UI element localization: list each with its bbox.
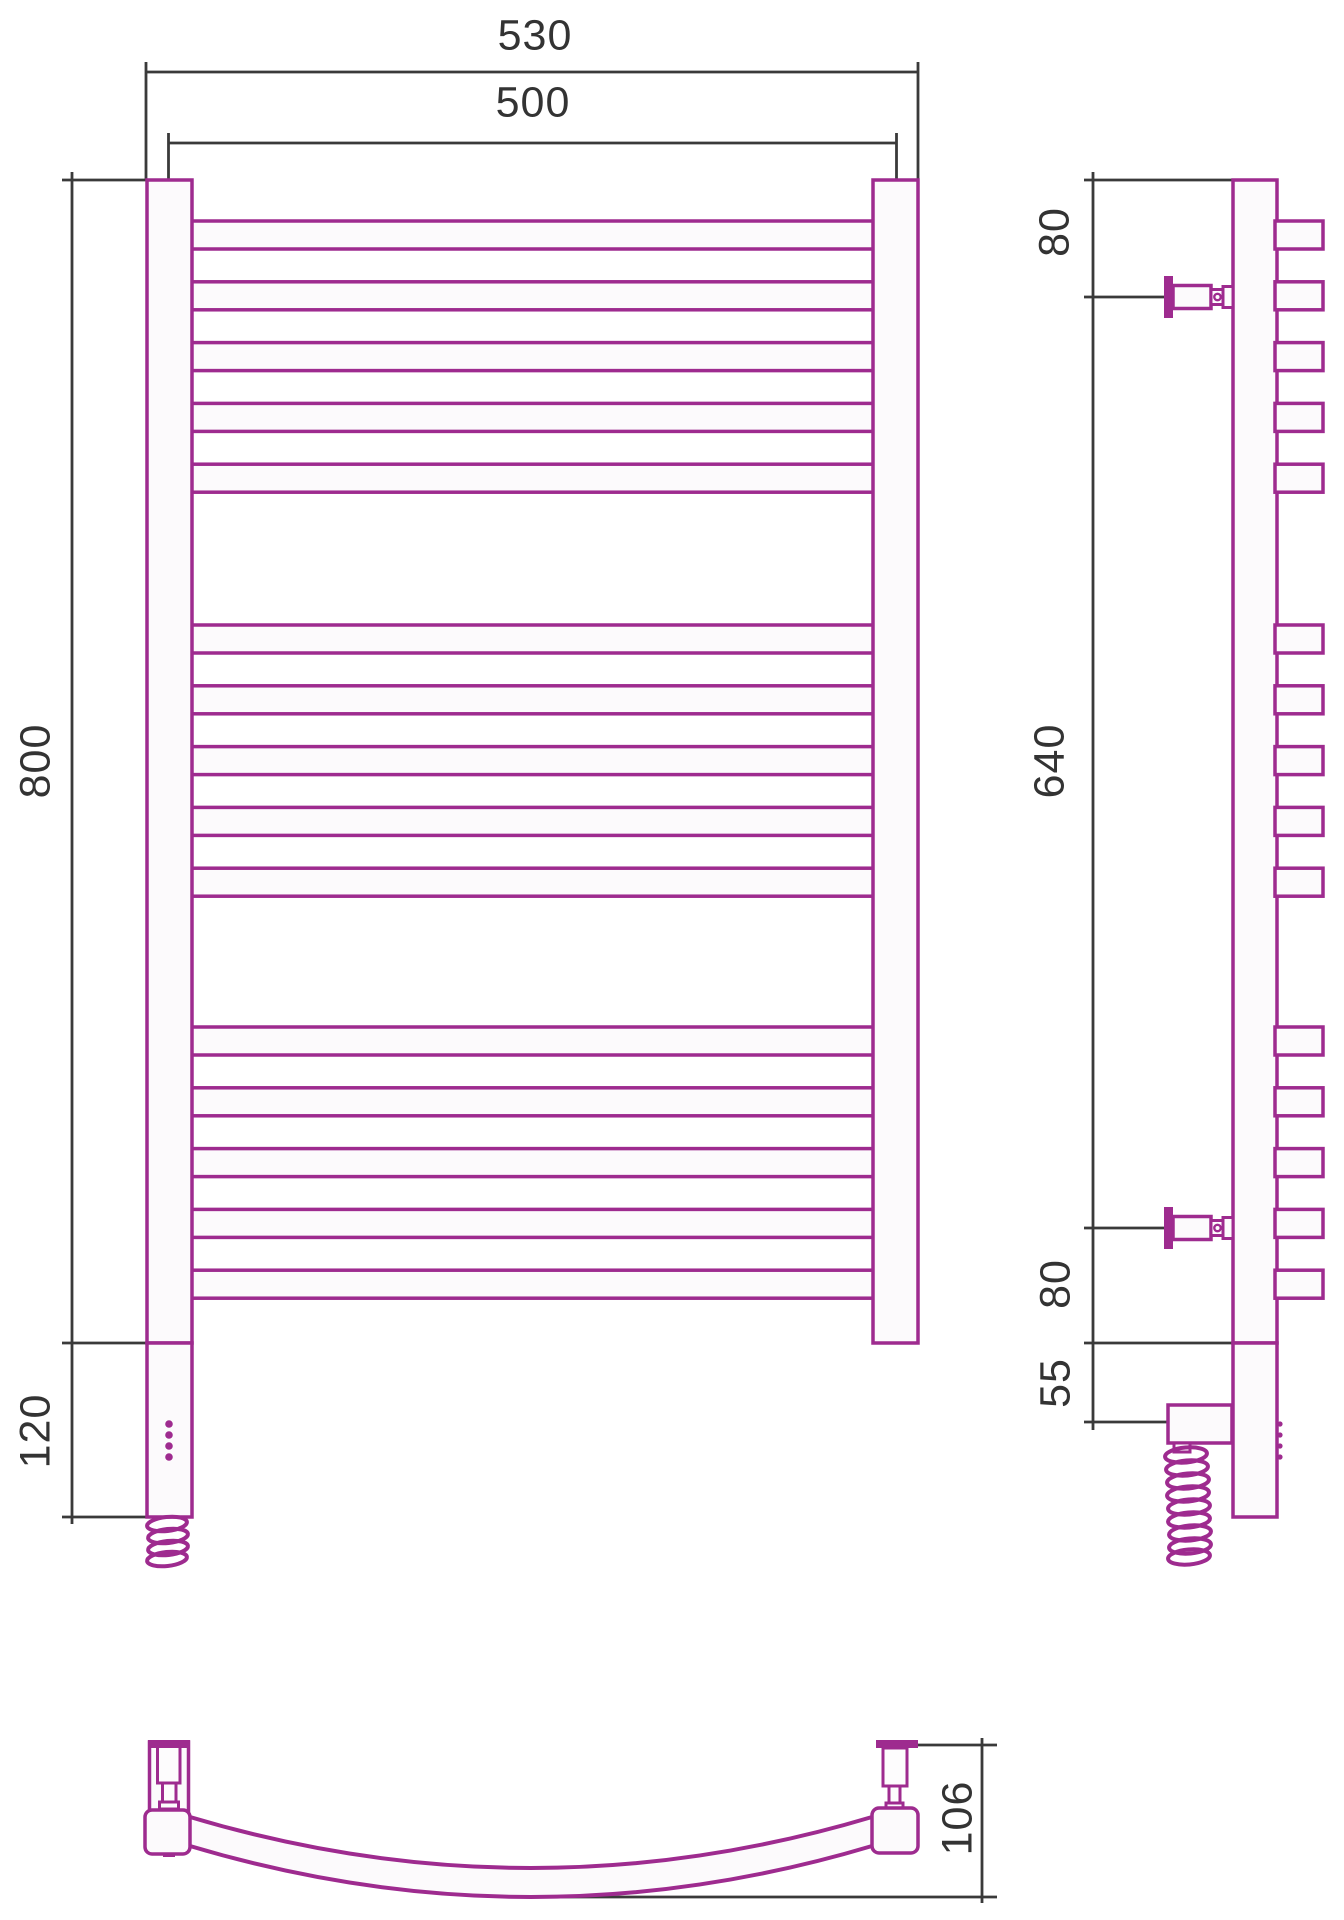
side-bar-stub — [1275, 343, 1323, 371]
side-bar-stub — [1275, 747, 1323, 775]
technical-drawing: 530 500 800 120 80 640 80 55 106 — [0, 0, 1344, 1920]
front-left-post — [147, 180, 192, 1343]
side-dimension-lines — [1084, 172, 1233, 1430]
side-bar-stub — [1275, 464, 1323, 492]
right-post-section — [872, 1808, 918, 1853]
dim-text-top-offset: 80 — [1034, 207, 1077, 257]
front-bar — [191, 686, 874, 714]
left-post-section — [145, 1810, 190, 1854]
dim-text-overall-width: 530 — [498, 15, 573, 58]
front-bar — [191, 221, 874, 249]
drawing-geometry — [0, 0, 1344, 1920]
arc-band-fill — [190, 1817, 872, 1897]
wall-bracket-bottom — [1164, 1207, 1233, 1249]
side-bar-stub — [1275, 403, 1323, 431]
side-bar-stub — [1275, 282, 1323, 310]
front-bars — [191, 221, 874, 1298]
side-bar-stubs — [1275, 221, 1323, 1298]
power-cable-coil — [146, 1515, 188, 1568]
side-bar-stub — [1275, 1270, 1323, 1298]
bottom-right-bracket — [872, 1740, 918, 1853]
front-bar — [191, 343, 874, 371]
dim-text-centers-width: 500 — [496, 82, 571, 125]
front-bar — [191, 282, 874, 310]
side-power-cable-coil — [1164, 1446, 1211, 1567]
side-bar-stub — [1275, 625, 1323, 653]
side-bar-stub — [1275, 807, 1323, 835]
wall-bracket-top — [1164, 276, 1233, 318]
side-wall-plate — [1233, 180, 1277, 1343]
front-bar — [191, 403, 874, 431]
side-bar-stub — [1275, 1027, 1323, 1055]
dim-text-height: 800 — [15, 724, 58, 799]
dim-text-bottom-offset: 80 — [1035, 1259, 1078, 1309]
bottom-left-bracket — [145, 1740, 190, 1857]
side-bar-stub — [1275, 868, 1323, 896]
front-bar — [191, 1209, 874, 1237]
front-bar — [191, 747, 874, 775]
side-heater-housing — [1233, 1343, 1277, 1517]
front-right-post — [873, 180, 918, 1343]
front-bar — [191, 464, 874, 492]
dim-text-heater-section: 120 — [15, 1394, 58, 1469]
dim-text-arc-depth: 106 — [937, 1781, 980, 1856]
side-heating-element — [1168, 1405, 1232, 1443]
front-bar — [191, 868, 874, 896]
front-bar — [191, 1027, 874, 1055]
side-bar-stub — [1275, 686, 1323, 714]
bottom-view — [145, 1738, 997, 1903]
side-bar-stub — [1275, 221, 1323, 249]
front-bar — [191, 625, 874, 653]
side-bar-stub — [1275, 1209, 1323, 1237]
dim-text-bracket-span: 640 — [1029, 724, 1072, 799]
front-bar — [191, 1149, 874, 1177]
dim-text-heater-drop: 55 — [1035, 1358, 1078, 1408]
side-bar-stub — [1275, 1149, 1323, 1177]
front-bar — [191, 1088, 874, 1116]
side-bar-stub — [1275, 1088, 1323, 1116]
front-heater-housing — [147, 1343, 192, 1517]
front-bar — [191, 807, 874, 835]
front-view — [62, 62, 918, 1568]
front-bar — [191, 1270, 874, 1298]
side-view — [1084, 172, 1323, 1566]
